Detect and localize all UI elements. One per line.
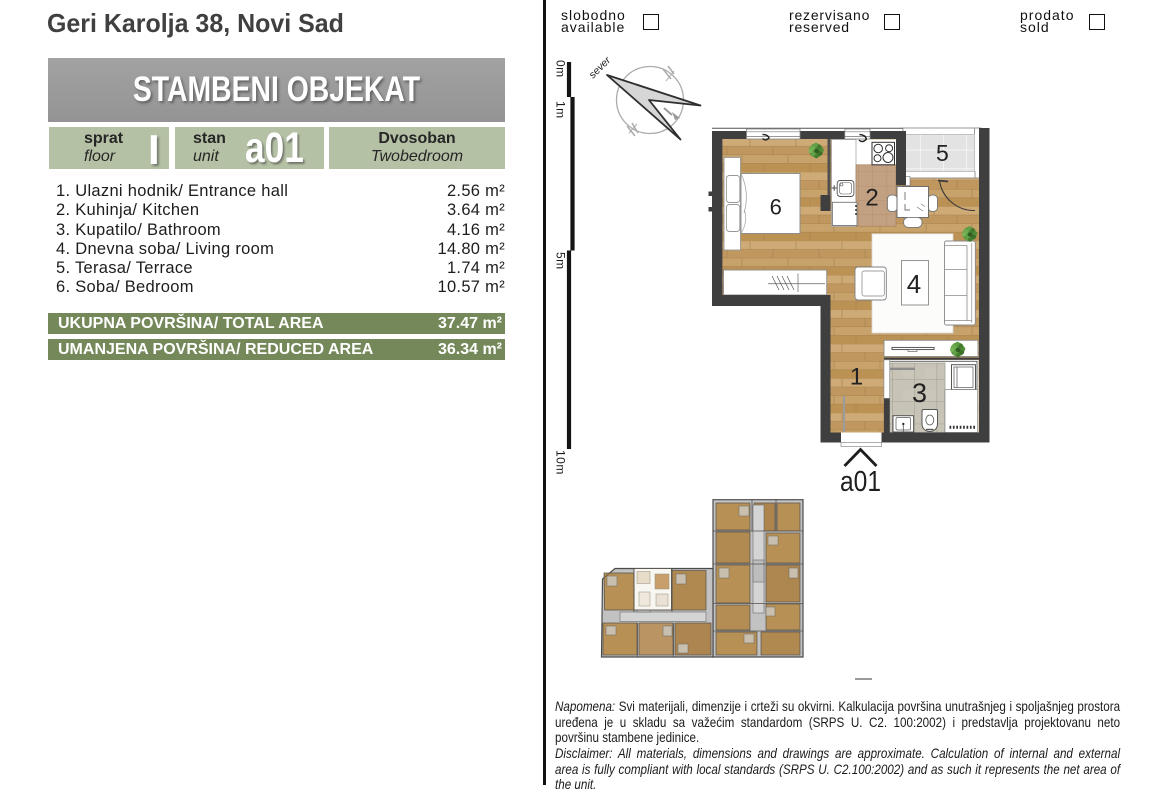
svg-text:1m: 1m <box>554 101 568 119</box>
svg-text:1: 1 <box>850 364 863 391</box>
svg-text:0m: 0m <box>554 60 568 78</box>
svg-text:3: 3 <box>912 378 927 408</box>
svg-text:6: 6 <box>770 195 782 220</box>
svg-text:10m: 10m <box>554 450 568 475</box>
svg-text:5: 5 <box>936 140 949 166</box>
svg-text:4: 4 <box>907 269 921 299</box>
svg-text:2: 2 <box>865 185 878 212</box>
svg-text:5m: 5m <box>554 252 568 270</box>
